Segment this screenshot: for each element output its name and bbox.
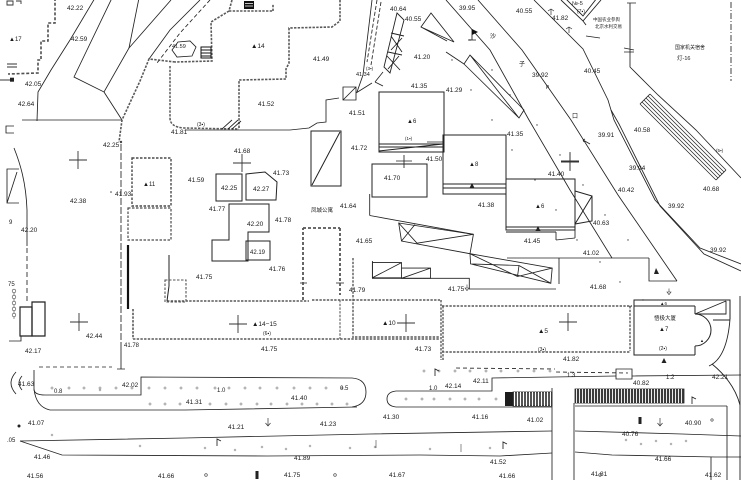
svg-text:40.42: 40.42 [618,187,635,194]
svg-text:41.66: 41.66 [499,473,516,480]
svg-text:沙: 沙 [490,33,496,40]
svg-text:41.81: 41.81 [591,471,608,478]
svg-text:0.8: 0.8 [54,389,63,395]
svg-text:(3▪): (3▪) [197,122,205,128]
svg-text:39.92: 39.92 [668,203,685,210]
svg-text:41.82: 41.82 [563,356,580,363]
svg-text:41.63: 41.63 [18,381,35,388]
svg-text:42.38: 42.38 [70,198,87,205]
svg-text:凤城公寓: 凤城公寓 [311,206,334,214]
svg-text:42.20: 42.20 [21,227,38,234]
svg-text:1.0: 1.0 [217,388,226,394]
svg-text:41.75: 41.75 [196,274,213,281]
svg-text:▲14−15: ▲14−15 [252,321,277,328]
svg-text:1.2: 1.2 [666,375,675,381]
svg-text:41.68: 41.68 [590,284,607,291]
svg-text:中国农业参舆: 中国农业参舆 [593,16,620,23]
svg-text:40.68: 40.68 [703,186,720,193]
svg-text:41.78: 41.78 [275,217,292,224]
svg-text:国家机关宿舍: 国家机关宿舍 [675,44,705,51]
svg-text:▲7: ▲7 [659,327,669,333]
svg-text:▲: ▲ [700,338,704,343]
svg-text:39.94: 39.94 [629,165,646,172]
svg-text:41.38: 41.38 [478,202,495,209]
svg-text:41.52: 41.52 [490,459,507,466]
svg-text:41.29: 41.29 [446,87,463,94]
svg-text:42.44: 42.44 [86,333,103,340]
svg-text:42.25: 42.25 [103,142,120,149]
svg-text:41.59: 41.59 [172,44,186,50]
svg-text:41.65: 41.65 [356,238,373,245]
svg-text:40.55: 40.55 [516,8,533,15]
svg-text:40.58: 40.58 [634,127,651,134]
svg-text:41.68: 41.68 [234,148,251,155]
svg-text:42.05: 42.05 [25,81,42,88]
svg-text:39.92: 39.92 [710,247,727,254]
svg-text:▲6: ▲6 [660,301,667,306]
svg-text:▲6: ▲6 [407,119,417,125]
svg-text:▲5: ▲5 [538,328,548,335]
svg-text:40.76: 40.76 [622,431,639,438]
svg-text:42.22: 42.22 [67,5,84,12]
svg-text:41.73: 41.73 [415,346,432,353]
svg-text:39.95: 39.95 [459,5,476,12]
svg-text:41.45: 41.45 [524,238,541,245]
svg-text:40.82: 40.82 [633,380,650,387]
svg-text:(3▪): (3▪) [366,66,374,71]
svg-text:41.70: 41.70 [384,175,401,182]
svg-text:42.59: 42.59 [71,36,88,43]
svg-text:41.79: 41.79 [349,287,366,294]
svg-text:(1▪): (1▪) [405,136,413,141]
svg-text:41.67: 41.67 [389,472,406,479]
svg-text:41.02: 41.02 [583,250,600,257]
svg-text:41.66: 41.66 [158,473,175,480]
svg-text:41.23: 41.23 [320,421,337,428]
svg-text:42.19: 42.19 [250,250,266,256]
svg-text:42.14: 42.14 [445,383,462,390]
svg-text:41.75: 41.75 [261,346,278,353]
svg-text:41.49: 41.49 [313,56,330,63]
svg-text:41.56: 41.56 [27,473,44,480]
svg-text:灯-16: 灯-16 [677,54,690,62]
svg-text:41.52: 41.52 [258,101,275,108]
svg-text:41.20: 41.20 [414,54,431,61]
svg-text:41.35: 41.35 [507,131,524,138]
svg-text:41.59: 41.59 [188,177,205,184]
svg-text:口: 口 [572,113,578,120]
svg-text:41.02: 41.02 [527,417,544,424]
svg-text:▲17: ▲17 [9,37,22,43]
svg-text:北京水利交易: 北京水利交易 [595,23,622,30]
svg-text:41.30: 41.30 [383,414,400,421]
svg-text:41.72: 41.72 [351,145,368,152]
svg-text:42.11: 42.11 [473,378,489,385]
svg-text:41.75: 41.75 [448,286,465,293]
svg-text:▲14: ▲14 [251,43,265,50]
svg-text:42.17: 42.17 [25,348,42,355]
svg-text:41.50: 41.50 [426,156,443,163]
svg-text:75: 75 [8,282,15,288]
svg-text:41.46: 41.46 [34,454,51,461]
svg-text:(3▪): (3▪) [538,347,546,353]
svg-text:41.73: 41.73 [273,170,290,177]
svg-text:42.64: 42.64 [18,101,35,108]
svg-text:№-5: №-5 [572,1,583,7]
svg-text:(7▪): (7▪) [577,9,585,15]
svg-text:41.76: 41.76 [269,266,286,273]
svg-text:41.66: 41.66 [655,456,672,463]
svg-text:(5▪): (5▪) [716,148,724,153]
svg-text:42.02: 42.02 [122,382,139,389]
svg-text:41.21: 41.21 [228,424,245,431]
svg-text:40.90: 40.90 [685,420,702,427]
svg-text:41.51: 41.51 [349,110,366,117]
svg-text:39.91: 39.91 [598,132,615,139]
svg-text:悟极大厦: 悟极大厦 [654,314,677,322]
svg-text:41.64: 41.64 [340,203,357,210]
svg-text:41.78: 41.78 [124,343,140,349]
svg-text:▲8: ▲8 [469,162,479,168]
svg-text:42.25: 42.25 [221,185,238,192]
svg-text:41.93: 41.93 [115,191,132,198]
svg-text:.05: .05 [7,438,16,444]
svg-text:40.55: 40.55 [405,16,422,23]
svg-text:41.40: 41.40 [291,395,308,402]
svg-text:▲11: ▲11 [143,182,156,188]
svg-text:41.35: 41.35 [411,83,428,90]
svg-text:41.34: 41.34 [356,72,370,78]
svg-text:41.75: 41.75 [284,472,301,479]
svg-text:41.16: 41.16 [472,414,489,421]
svg-text:▲10: ▲10 [382,320,396,327]
svg-text:41.62: 41.62 [705,472,722,479]
svg-text:41.07: 41.07 [28,420,45,427]
svg-text:▲6: ▲6 [535,204,545,210]
svg-text:41.82: 41.82 [552,15,569,22]
svg-text:40.45: 40.45 [584,68,601,75]
svg-text:0.5: 0.5 [340,386,349,392]
svg-text:40.63: 40.63 [593,220,610,227]
svg-text:41.77: 41.77 [209,206,226,213]
svg-text:(2▪): (2▪) [659,346,667,352]
svg-text:42.21: 42.21 [712,374,729,381]
svg-text:1.3: 1.3 [567,373,576,379]
svg-text:子: 子 [519,61,525,68]
svg-text:39.92: 39.92 [532,72,549,79]
svg-text:42.20: 42.20 [247,221,264,228]
svg-text:41.89: 41.89 [294,455,311,462]
svg-text:1.0: 1.0 [429,386,438,392]
svg-text:p: p [546,84,549,90]
svg-text:41.31: 41.31 [186,399,203,406]
svg-text:40.64: 40.64 [390,6,407,13]
svg-text:42.27: 42.27 [253,186,270,193]
svg-text:(6▪): (6▪) [263,331,271,337]
